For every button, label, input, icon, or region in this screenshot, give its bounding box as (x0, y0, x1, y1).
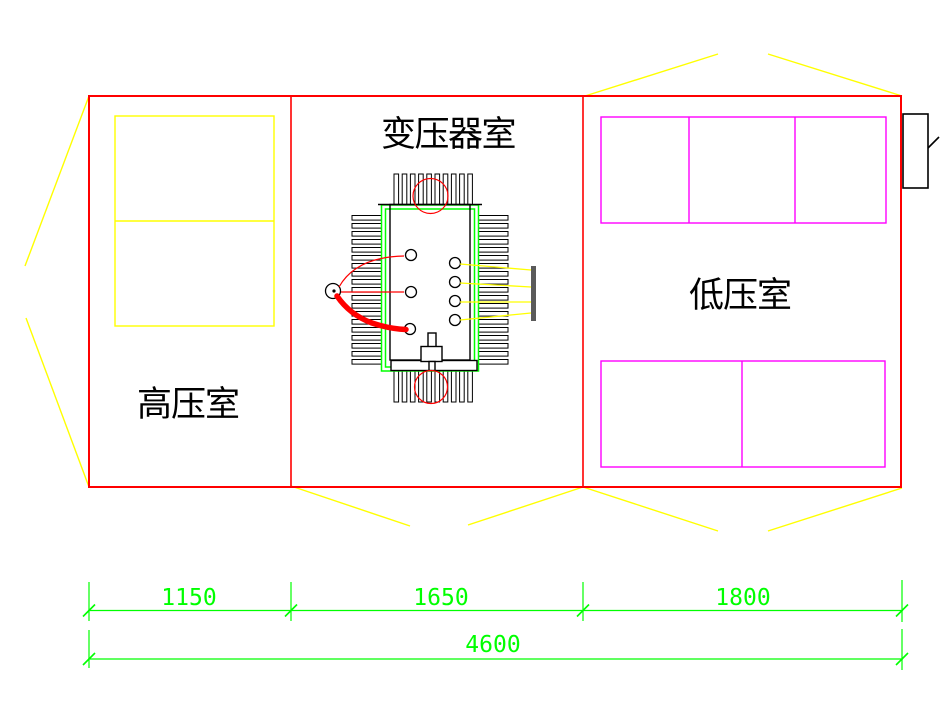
lv-cabinet-row-bottom (601, 361, 885, 467)
wall-duct-box (903, 114, 939, 188)
room-label-low-voltage: 低压室 (689, 277, 791, 316)
floor-plan-canvas (0, 0, 940, 713)
room-label-transformer: 变压器室 (381, 116, 515, 155)
dim-label-1800: 1800 (715, 587, 770, 610)
dim-label-4600-overall: 4600 (465, 634, 520, 657)
transformer-fins-left (352, 216, 382, 365)
floor-plan-drawing: 高压室 变压器室 低压室 1150 1650 1800 4600 (0, 0, 940, 713)
hv-switchgear-cabinet (115, 116, 274, 326)
lv-busbar (531, 266, 536, 321)
transformer-fins-right (479, 216, 509, 365)
hv-terminals (405, 250, 417, 335)
lv-cabinet-row-top (601, 117, 886, 223)
lv-terminals (450, 258, 461, 326)
dim-label-1650: 1650 (413, 587, 468, 610)
transformer-fins-bottom (394, 371, 472, 402)
room-label-high-voltage: 高压室 (137, 386, 239, 425)
dim-label-1150: 1150 (161, 587, 216, 610)
